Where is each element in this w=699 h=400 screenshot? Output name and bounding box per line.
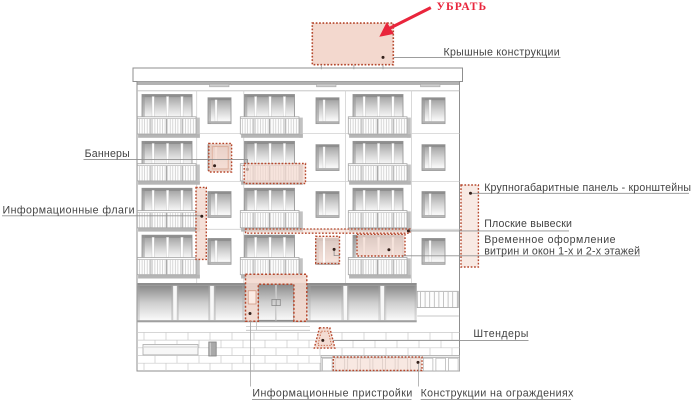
svg-text:Информационные пристройки: Информационные пристройки [252,388,412,400]
svg-text:Плоские вывески: Плоские вывески [484,218,572,230]
svg-text:Штендеры: Штендеры [473,328,528,340]
svg-text:Информационные флаги: Информационные флаги [3,204,136,216]
svg-text:Баннеры: Баннеры [85,148,130,160]
svg-text:Крышные конструкции: Крышные конструкции [444,46,560,58]
svg-text:Конструкции на ограждениях: Конструкции на ограждениях [421,388,575,400]
svg-text:Крупногабаритные панель - крон: Крупногабаритные панель - кронштейны [484,182,691,194]
svg-text:УБРАТЬ: УБРАТЬ [437,1,488,13]
svg-text:витрин и окон 1-х и 2-х этажей: витрин и окон 1-х и 2-х этажей [484,245,640,257]
